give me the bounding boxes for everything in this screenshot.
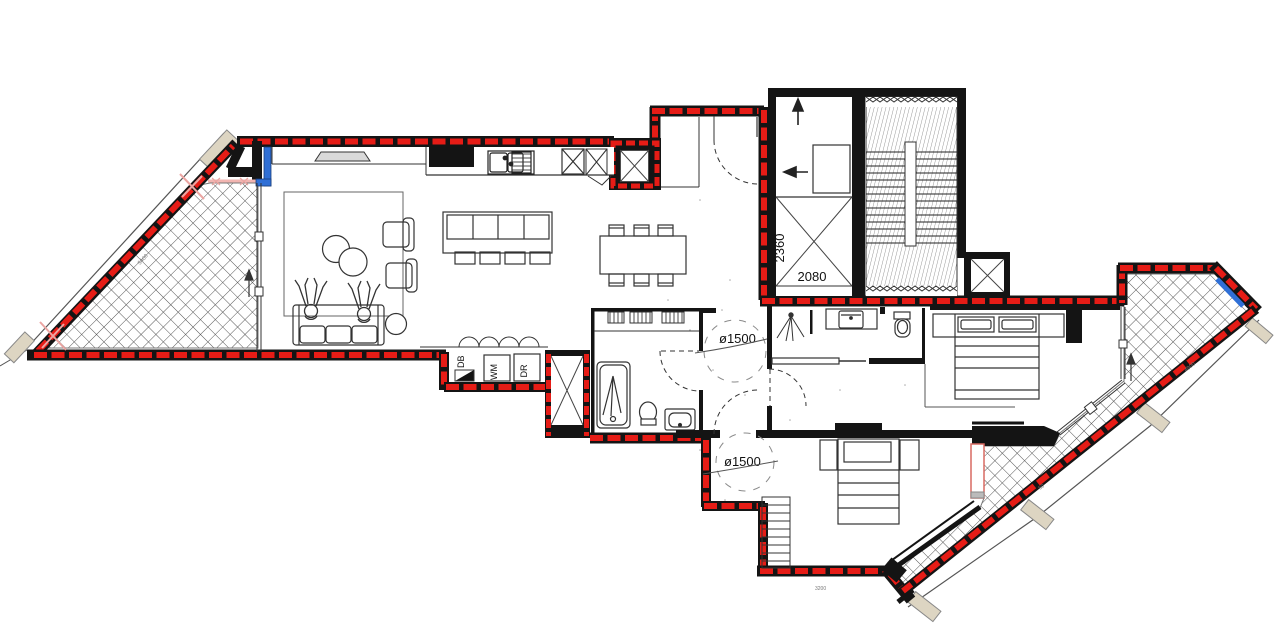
svg-text:WM: WM [489,364,499,380]
svg-text:DB: DB [456,355,466,368]
svg-text:3200: 3200 [815,586,826,592]
svg-text:2360: 2360 [772,234,787,263]
svg-text:2080: 2080 [798,269,827,284]
svg-text:ø1500: ø1500 [719,331,756,346]
svg-text:DR: DR [519,364,529,377]
svg-text:ø1500: ø1500 [724,454,761,469]
